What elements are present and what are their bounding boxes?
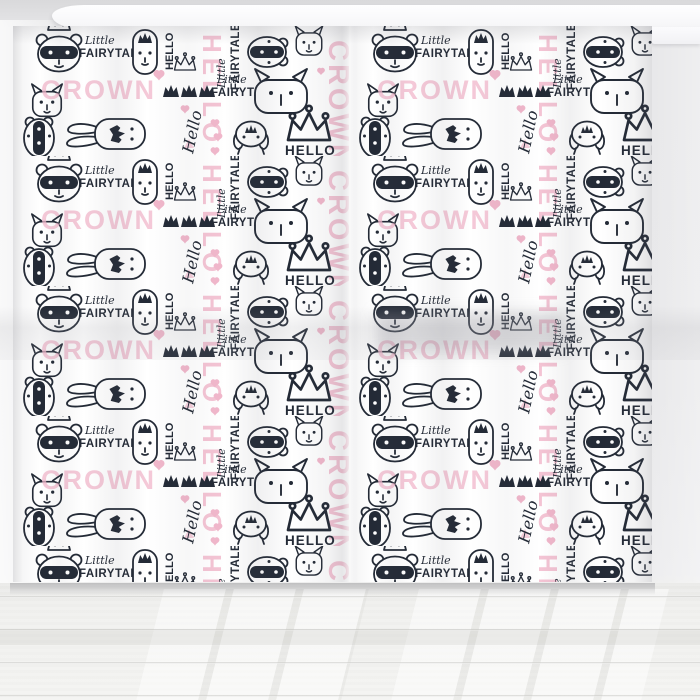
plank-line — [0, 695, 700, 697]
curtain-shadow — [10, 583, 655, 595]
plank-line — [0, 629, 700, 631]
curtain-panel-right — [349, 26, 652, 582]
window-frame-shadow — [0, 629, 700, 645]
plank-line — [0, 596, 700, 598]
product-photo: Little FAIRYTALE HELLO HELLO Little FAIR… — [0, 0, 700, 700]
curtain-panel-left — [13, 26, 349, 582]
pelmet-shadow — [13, 26, 652, 44]
plank-line — [0, 662, 700, 664]
wood-floor — [0, 583, 700, 700]
panel-seam-highlight — [342, 26, 358, 582]
